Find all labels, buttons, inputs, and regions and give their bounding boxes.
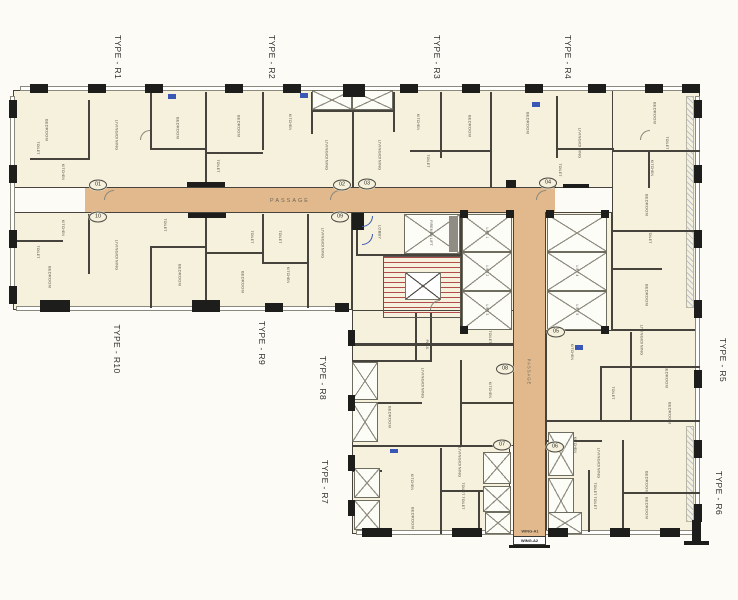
lift1-label: LIFT 1 bbox=[485, 228, 489, 239]
unit-number-10: 10 bbox=[89, 212, 107, 223]
column-block bbox=[452, 528, 482, 537]
fixture-blue bbox=[168, 94, 176, 99]
wing-a2-label: WING-A2 bbox=[513, 536, 546, 545]
room-label-kitchen: KITCHEN bbox=[61, 164, 65, 180]
room-label-bedroom: BEDROOM bbox=[668, 402, 673, 424]
lift5-label: LIFT 5 bbox=[575, 305, 579, 316]
column-block bbox=[694, 230, 702, 248]
column-block bbox=[362, 528, 392, 537]
balcony-box bbox=[352, 362, 378, 400]
wall-segment bbox=[600, 366, 700, 368]
room-label-toilet: TOILET bbox=[426, 154, 430, 167]
ledge-hatch bbox=[686, 96, 694, 308]
room-label-bedroom: BEDROOM bbox=[241, 271, 246, 293]
fixture-blue bbox=[532, 102, 540, 107]
column-block bbox=[694, 165, 702, 183]
room-label-toilet: TOILET bbox=[163, 218, 167, 231]
unit-number-07: 07 bbox=[493, 440, 511, 451]
column-block bbox=[9, 286, 17, 304]
unit-number-04: 04 bbox=[539, 178, 557, 189]
room-label-bedroom: BEDROOM bbox=[645, 284, 650, 306]
column-block bbox=[348, 500, 355, 516]
type-label-r10: TYPE - R10 bbox=[112, 324, 122, 373]
column-block bbox=[265, 303, 283, 312]
room-label-toilet: TOILET bbox=[216, 159, 220, 172]
room-label-toilet: TOILET bbox=[36, 245, 40, 258]
room-label-kitchen: KITCHEN bbox=[570, 344, 574, 360]
room-label-kitchen: KITCHEN bbox=[416, 114, 420, 130]
column-block bbox=[348, 455, 355, 471]
column-block bbox=[192, 300, 220, 312]
room-label-pass: PASS. bbox=[425, 340, 429, 351]
room-label-kitchen: KITCHEN bbox=[488, 382, 492, 398]
balcony-box bbox=[352, 402, 378, 442]
room-label-living: LIVING/DINING bbox=[578, 128, 583, 159]
column-block bbox=[343, 84, 365, 97]
column-block bbox=[601, 210, 609, 218]
column-block bbox=[525, 84, 543, 93]
type-label-r7: TYPE - R7 bbox=[320, 460, 330, 504]
room-label-toilet: TOILET bbox=[278, 230, 282, 243]
column-block bbox=[506, 210, 514, 218]
type-label-r4: TYPE - R4 bbox=[563, 35, 573, 79]
type-label-r5: TYPE - R5 bbox=[718, 338, 728, 382]
stair-landing bbox=[405, 272, 441, 300]
room-label-living: LIVING/DINING bbox=[640, 325, 645, 356]
unit-number-08: 08 bbox=[496, 364, 514, 375]
room-label-kitchen: KITCHEN bbox=[410, 474, 414, 490]
type-label-r2: TYPE - R2 bbox=[267, 35, 277, 79]
fixture-blue bbox=[575, 345, 583, 350]
room-label-bedroom: BEDROOM bbox=[411, 507, 416, 529]
wall-segment bbox=[546, 420, 700, 422]
ledge-hatch bbox=[686, 426, 694, 522]
balcony-box bbox=[483, 452, 511, 484]
column-block bbox=[506, 180, 516, 188]
room-label-toilet: TOILET bbox=[665, 136, 669, 149]
room-label-bedroom: BEDROOM bbox=[665, 366, 670, 388]
wall-segment bbox=[622, 492, 700, 494]
wall-segment bbox=[490, 92, 492, 188]
room-label-kitchen: KITCHEN bbox=[61, 220, 65, 236]
column-block bbox=[694, 440, 702, 458]
column-block bbox=[694, 300, 702, 318]
column-block bbox=[588, 84, 606, 93]
column-block bbox=[684, 541, 709, 545]
column-block bbox=[145, 84, 163, 93]
shaft-gray bbox=[449, 216, 458, 252]
column-block bbox=[30, 84, 48, 93]
balcony-box bbox=[354, 468, 380, 498]
balcony-box bbox=[485, 512, 511, 534]
room-label-living: LIVING/DINING bbox=[378, 140, 383, 171]
passage-label-vertical: PASSAGE bbox=[527, 359, 532, 386]
wall-segment bbox=[205, 152, 263, 154]
room-label-living: LIVING/DINING bbox=[325, 140, 330, 171]
room-label-toilet: TOILET bbox=[461, 482, 465, 495]
lift2-label: LIFT 2 bbox=[485, 266, 489, 277]
column-block bbox=[610, 528, 630, 537]
room-label-kitchen: KITCHEN bbox=[288, 114, 292, 130]
column-block bbox=[460, 326, 468, 334]
wall-segment bbox=[150, 148, 207, 150]
room-label-living: LIVING/DINING bbox=[458, 447, 463, 478]
wall-segment bbox=[460, 402, 514, 404]
wall-segment bbox=[262, 262, 308, 264]
room-label-toilet: TOILET bbox=[593, 496, 597, 509]
wall-segment bbox=[410, 150, 492, 152]
lobby-label: LOBBY bbox=[378, 225, 383, 239]
room-label-bedroom: BEDROOM bbox=[645, 194, 650, 216]
column-block bbox=[462, 84, 480, 93]
wall-segment bbox=[262, 92, 264, 150]
balcony-box bbox=[548, 432, 574, 476]
column-block bbox=[460, 210, 468, 218]
room-label-toilet: TOILET bbox=[558, 163, 562, 176]
column-block bbox=[546, 210, 554, 218]
unit-number-06: 06 bbox=[546, 442, 564, 453]
wall-segment bbox=[88, 214, 90, 274]
type-label-r8: TYPE - R8 bbox=[318, 356, 328, 400]
wall-segment bbox=[622, 440, 624, 534]
wall-segment bbox=[612, 230, 700, 232]
room-label-living: LIVING/DINING bbox=[321, 228, 326, 259]
room-label-living: LIVING/DINING bbox=[115, 240, 120, 271]
wall-segment bbox=[150, 92, 152, 150]
wall-segment bbox=[588, 470, 590, 532]
room-label-toilet: TOILET bbox=[488, 330, 492, 343]
room-label-bedroom: BEDROOM bbox=[176, 117, 181, 139]
type-label-r3: TYPE - R3 bbox=[432, 35, 442, 79]
wall-segment bbox=[150, 246, 152, 308]
wall-segment bbox=[150, 246, 207, 248]
room-label-toilet: TOILET bbox=[648, 230, 652, 243]
room-label-bedroom: BEDROOM bbox=[468, 115, 473, 137]
wall-segment bbox=[13, 240, 63, 242]
floor-plan: WING-A1 WING-A2 TYPE - R1 TYPE - R2 TYPE… bbox=[0, 0, 738, 600]
column-block bbox=[9, 230, 17, 248]
type-label-r6: TYPE - R6 bbox=[714, 471, 724, 515]
type-label-r9: TYPE - R9 bbox=[257, 321, 267, 365]
room-label-toilet: TOILET bbox=[611, 386, 615, 399]
wall-segment bbox=[415, 312, 417, 362]
unit-number-02: 02 bbox=[333, 180, 351, 191]
room-label-living: LIVING/DINING bbox=[421, 368, 426, 399]
room-label-toilet: TOILET bbox=[250, 230, 254, 243]
wall-segment bbox=[556, 148, 614, 150]
wall-segment bbox=[205, 214, 207, 308]
room-label-bedroom: BEDROOM bbox=[48, 266, 53, 288]
room-label-living: LIVING/DINING bbox=[597, 448, 602, 479]
unit-number-01: 01 bbox=[89, 180, 107, 191]
wing-divider bbox=[509, 545, 550, 548]
wall-segment bbox=[205, 92, 207, 188]
room-label-bedroom: BEDROOM bbox=[45, 119, 50, 141]
wall-segment bbox=[440, 92, 442, 158]
wing-a1-label: WING-A1 bbox=[521, 529, 538, 534]
window-strip bbox=[10, 96, 15, 300]
wall-segment bbox=[630, 332, 632, 420]
wall-segment bbox=[430, 312, 432, 362]
wall-block bbox=[563, 184, 589, 188]
room-label-toilet: TOILET bbox=[593, 482, 597, 495]
column-block bbox=[9, 100, 17, 118]
room-label-bedroom: BEDROOM bbox=[645, 497, 650, 519]
balcony-box bbox=[354, 500, 380, 530]
wall-segment bbox=[205, 252, 263, 254]
column-block bbox=[682, 84, 700, 93]
wall-segment bbox=[30, 158, 90, 160]
room-label-bedroom: BEDROOM bbox=[388, 406, 393, 428]
firemen-lift-label: FIREMEN LIFT bbox=[429, 220, 433, 246]
wall-segment bbox=[262, 214, 264, 262]
unit-number-09: 09 bbox=[331, 212, 349, 223]
column-block bbox=[694, 370, 702, 388]
room-label-toilet: TOILET bbox=[36, 141, 40, 154]
fixture-blue bbox=[300, 93, 308, 98]
passage-label-horizontal: PASSAGE bbox=[270, 198, 310, 204]
wall-segment bbox=[312, 110, 393, 112]
wall-segment bbox=[88, 100, 90, 160]
column-block bbox=[400, 84, 418, 93]
unit-number-05: 05 bbox=[547, 327, 565, 338]
column-block bbox=[88, 84, 106, 93]
room-label-bedroom: BEDROOM bbox=[237, 115, 242, 137]
room-label-toilet: TOILET bbox=[461, 496, 465, 509]
room-label-living: LIVING/DINING bbox=[115, 120, 120, 151]
lift4-label: LIFT 4 bbox=[575, 266, 579, 277]
room-label-kitchen: KITCHEN bbox=[573, 437, 577, 453]
column-block bbox=[694, 100, 702, 118]
wall-segment bbox=[393, 92, 395, 132]
column-block bbox=[548, 528, 568, 537]
room-label-kitchen: KITCHEN bbox=[286, 267, 290, 283]
lift3-label: LIFT 3 bbox=[485, 305, 489, 316]
column-block bbox=[283, 84, 301, 93]
column-block bbox=[335, 303, 349, 312]
column-block bbox=[40, 300, 70, 312]
column-block bbox=[348, 395, 355, 411]
column-block bbox=[225, 84, 243, 93]
type-label-r1: TYPE - R1 bbox=[113, 35, 123, 79]
column-block bbox=[348, 330, 355, 346]
lift-shaft-top-right bbox=[547, 214, 607, 252]
wall-segment bbox=[612, 268, 662, 270]
wall-segment bbox=[600, 366, 602, 420]
room-label-bedroom: BEDROOM bbox=[178, 264, 183, 286]
room-label-bedroom: BEDROOM bbox=[653, 102, 658, 124]
column-block bbox=[9, 165, 17, 183]
unit-number-03: 03 bbox=[358, 179, 376, 190]
column-block bbox=[660, 528, 680, 537]
balcony-box bbox=[483, 486, 511, 512]
column-block bbox=[645, 84, 663, 93]
fixture-blue bbox=[390, 449, 398, 453]
column-block bbox=[601, 326, 609, 334]
wall-segment bbox=[307, 214, 309, 308]
room-label-kitchen: KITCHEN bbox=[650, 160, 654, 176]
passage-horizontal bbox=[85, 187, 555, 213]
wall-segment bbox=[612, 150, 700, 152]
room-label-bedroom: BEDROOM bbox=[645, 471, 650, 493]
room-label-bedroom: BEDROOM bbox=[526, 112, 531, 134]
